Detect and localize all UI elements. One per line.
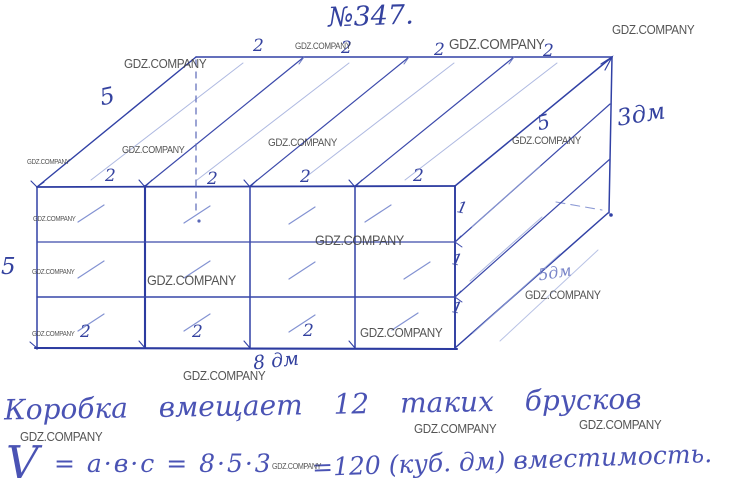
- watermark: GDZ.COMPANY: [27, 159, 69, 166]
- watermark: GDZ.COMPANY: [525, 288, 601, 302]
- bottom-segment-label-3: 2: [303, 321, 314, 341]
- top-back-segment-label-4: 2: [543, 41, 554, 61]
- front-top-segment-label-3: 2: [300, 167, 311, 187]
- front-top-segment-label-4: 2: [413, 166, 424, 186]
- watermark: GDZ.COMPANY: [122, 145, 184, 156]
- bottom-segment-label-1: 2: [80, 322, 91, 342]
- front-top-segment-label-1: 2: [105, 166, 116, 186]
- watermark: GDZ.COMPANY: [32, 331, 74, 338]
- watermark: GDZ.COMPANY: [272, 462, 321, 471]
- watermark: GDZ.COMPANY: [579, 417, 661, 432]
- watermark: GDZ.COMPANY: [147, 272, 236, 288]
- watermark: GDZ.COMPANY: [183, 368, 265, 383]
- watermark: GDZ.COMPANY: [268, 137, 337, 149]
- watermark: GDZ.COMPANY: [32, 269, 74, 276]
- watermark: GDZ.COMPANY: [449, 36, 545, 53]
- bottom-segment-label-2: 2: [192, 322, 203, 342]
- scanned-homework-page: №347. 2 2 2 2 2 2 2 2 2 2 2 1 1 1 5 5 5 …: [0, 0, 733, 502]
- watermark: GDZ.COMPANY: [360, 325, 442, 340]
- watermark: GDZ.COMPANY: [20, 429, 102, 444]
- watermark: GDZ.COMPANY: [315, 232, 404, 248]
- watermark: GDZ.COMPANY: [512, 135, 581, 147]
- front-left-label: 5: [1, 254, 16, 280]
- front-top-segment-label-2: 2: [207, 169, 218, 189]
- watermark: GDZ.COMPANY: [414, 421, 496, 436]
- top-back-segment-label-3: 2: [434, 40, 445, 60]
- watermark: GDZ.COMPANY: [612, 22, 694, 37]
- watermark: GDZ.COMPANY: [295, 41, 351, 51]
- watermark: GDZ.COMPANY: [124, 56, 206, 71]
- top-back-segment-label-1: 2: [253, 36, 264, 56]
- watermark: GDZ.COMPANY: [33, 216, 75, 223]
- volume-formula-left: = a·в·c = 8·5·3: [54, 449, 273, 478]
- problem-number: №347.: [327, 0, 414, 33]
